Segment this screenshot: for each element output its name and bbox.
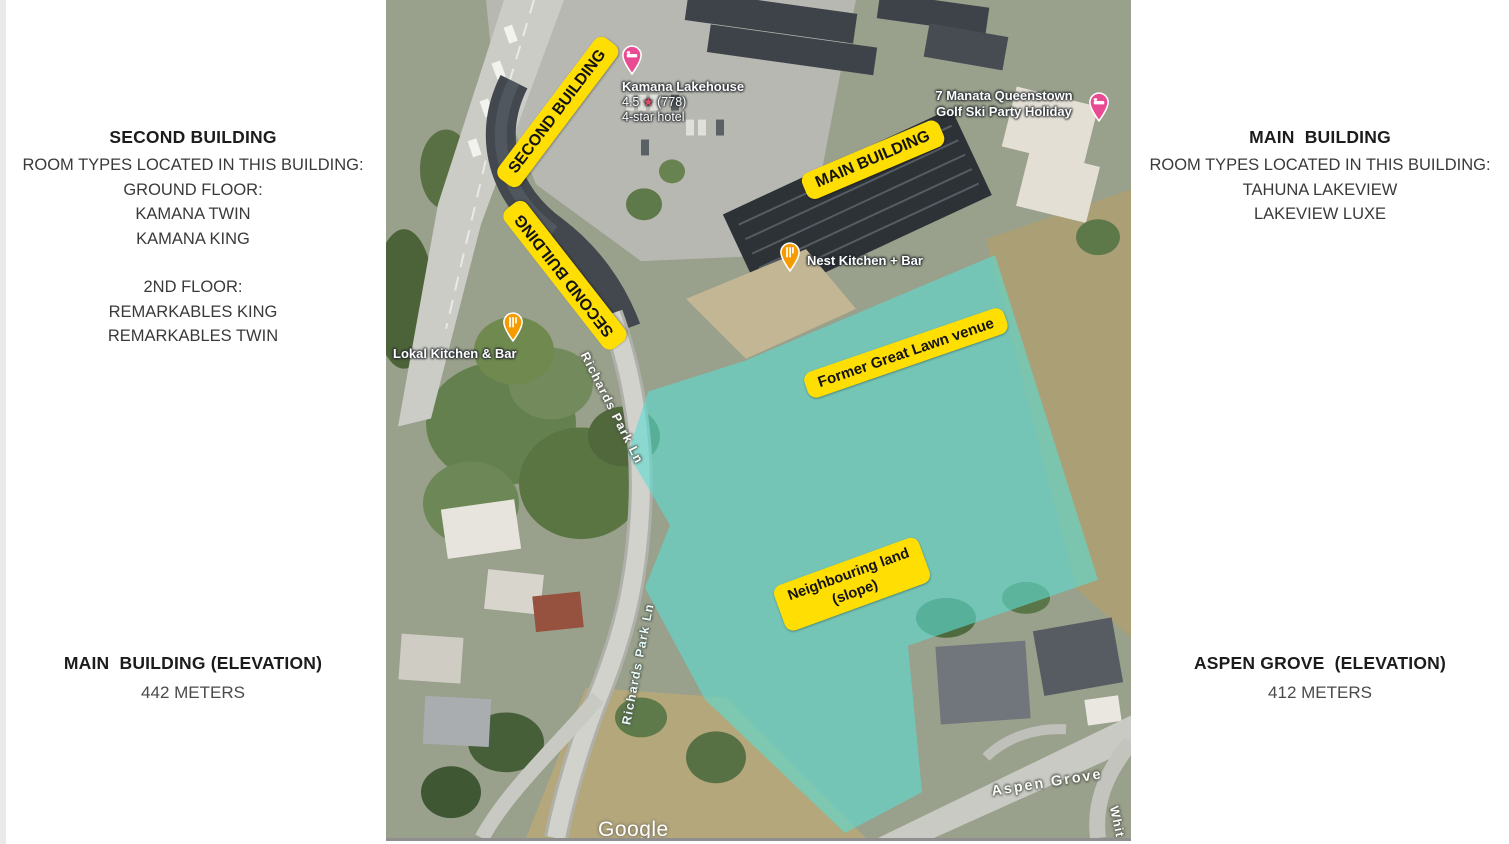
floor-heading: 2ND FLOOR: — [0, 275, 386, 300]
lodging-pin-manata[interactable] — [1088, 92, 1111, 122]
poi-name: Lokal Kitchen & Bar — [393, 346, 517, 361]
lodging-pin-kamana[interactable] — [621, 45, 644, 75]
main-building-elevation-block: MAIN BUILDING (ELEVATION) 442 METERS — [0, 653, 386, 706]
poi-name-line2: Golf Ski Party Holiday — [935, 104, 1072, 120]
poi-rating: 4.5 ★ (778) — [622, 95, 744, 109]
restaurant-pin-nest[interactable] — [779, 242, 802, 272]
poi-subtitle: 4-star hotel — [622, 110, 744, 124]
room-types-subtitle: ROOM TYPES LOCATED IN THIS BUILDING: — [0, 153, 386, 178]
rating-value: 4.5 — [622, 95, 639, 109]
aspen-grove-elevation-block: ASPEN GROVE (ELEVATION) 412 METERS — [1131, 653, 1509, 706]
poi-name: Nest Kitchen + Bar — [807, 253, 923, 268]
star-icon: ★ — [643, 95, 654, 109]
review-count: (778) — [657, 95, 686, 109]
elevation-value: 442 METERS — [0, 680, 386, 706]
elevation-title: ASPEN GROVE (ELEVATION) — [1131, 653, 1509, 674]
poi-label-kamana-lakehouse[interactable]: Kamana Lakehouse 4.5 ★ (778) 4-star hote… — [622, 79, 744, 124]
main-building-info-title: MAIN BUILDING — [1131, 127, 1509, 148]
room-type-line: KAMANA KING — [0, 227, 386, 252]
room-type-line: REMARKABLES TWIN — [0, 324, 386, 349]
restaurant-pin-lokal[interactable] — [502, 312, 525, 342]
room-type-line: REMARKABLES KING — [0, 300, 386, 325]
poi-label-nest-kitchen[interactable]: Nest Kitchen + Bar — [807, 253, 923, 268]
poi-label-manata[interactable]: 7 Manata Queenstown Golf Ski Party Holid… — [935, 88, 1072, 119]
room-type-line: TAHUNA LAKEVIEW — [1131, 178, 1509, 203]
room-types-subtitle: ROOM TYPES LOCATED IN THIS BUILDING: — [1131, 153, 1509, 178]
second-building-info-block: SECOND BUILDING ROOM TYPES LOCATED IN TH… — [0, 127, 386, 349]
satellite-imagery — [386, 0, 1131, 838]
annotated-map-page: SECOND BUILDING ROOM TYPES LOCATED IN TH… — [0, 0, 1509, 844]
floor-heading: GROUND FLOOR: — [0, 178, 386, 203]
poi-label-lokal-kitchen[interactable]: Lokal Kitchen & Bar — [393, 346, 517, 361]
map-canvas[interactable]: Richards Park Ln Richards Park Ln Aspen … — [386, 0, 1131, 841]
second-building-info-title: SECOND BUILDING — [0, 127, 386, 148]
elevation-value: 412 METERS — [1131, 680, 1509, 706]
google-logo: Google — [598, 818, 669, 841]
poi-name: Kamana Lakehouse — [622, 79, 744, 94]
room-type-line: LAKEVIEW LUXE — [1131, 202, 1509, 227]
room-type-line: KAMANA TWIN — [0, 202, 386, 227]
poi-name-line1: 7 Manata Queenstown — [935, 88, 1072, 104]
main-building-info-block: MAIN BUILDING ROOM TYPES LOCATED IN THIS… — [1131, 127, 1509, 227]
elevation-title: MAIN BUILDING (ELEVATION) — [0, 653, 386, 674]
